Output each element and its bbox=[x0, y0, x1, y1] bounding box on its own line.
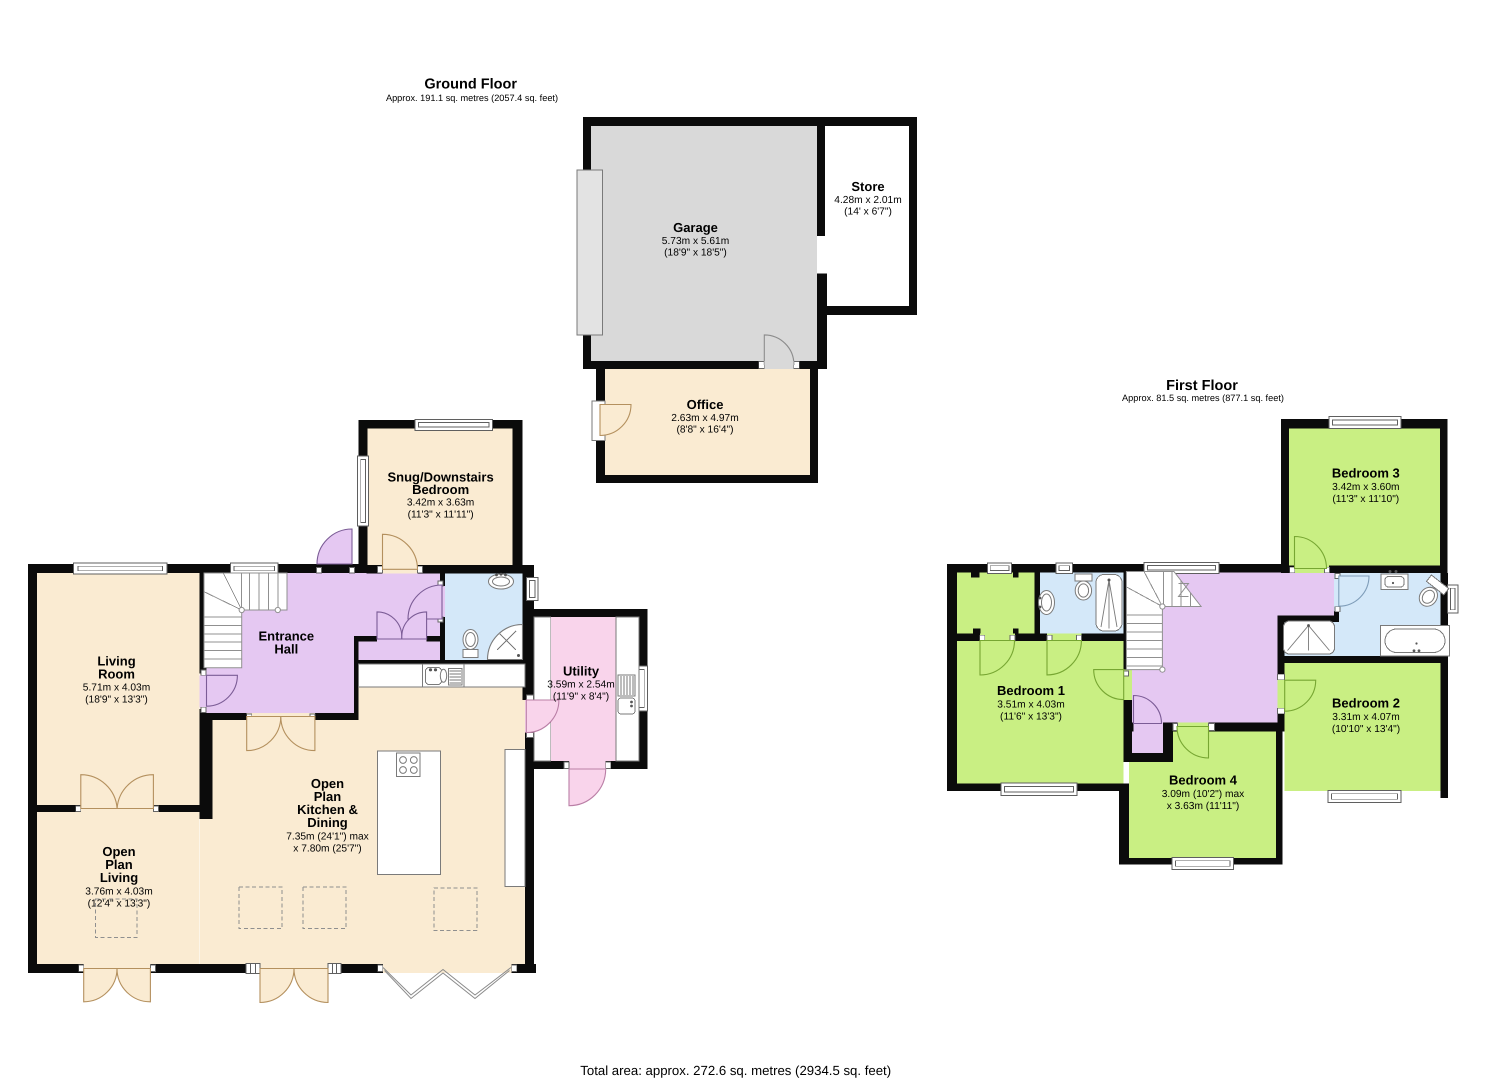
svg-text:Bedroom 2: Bedroom 2 bbox=[1332, 696, 1400, 711]
svg-text:5.71m x 4.03m: 5.71m x 4.03m bbox=[83, 683, 150, 694]
svg-text:3.59m x 2.54m: 3.59m x 2.54m bbox=[547, 680, 614, 691]
svg-text:Approx. 81.5 sq. metres (877.1: Approx. 81.5 sq. metres (877.1 sq. feet) bbox=[1122, 393, 1284, 403]
svg-text:Approx. 191.1 sq. metres (2057: Approx. 191.1 sq. metres (2057.4 sq. fee… bbox=[386, 93, 558, 103]
svg-text:Office: Office bbox=[687, 397, 724, 412]
svg-text:Total area: approx. 272.6 sq.: Total area: approx. 272.6 sq. metres (29… bbox=[580, 1063, 891, 1078]
svg-text:(14' x 6'7"): (14' x 6'7") bbox=[844, 207, 892, 218]
svg-text:Dining: Dining bbox=[307, 815, 347, 830]
svg-text:(12'4" x 13'3"): (12'4" x 13'3") bbox=[88, 899, 151, 910]
svg-text:x 7.80m (25'7"): x 7.80m (25'7") bbox=[293, 844, 361, 855]
svg-text:3.51m x 4.03m: 3.51m x 4.03m bbox=[997, 699, 1064, 710]
svg-text:Living: Living bbox=[100, 870, 138, 885]
svg-text:(11'9" x 8'4"): (11'9" x 8'4") bbox=[553, 692, 609, 703]
svg-text:Room: Room bbox=[98, 667, 135, 682]
svg-text:Store: Store bbox=[851, 179, 884, 194]
svg-text:Hall: Hall bbox=[274, 642, 298, 657]
svg-text:(18'9" x 13'3"): (18'9" x 13'3") bbox=[85, 695, 148, 706]
svg-text:(11'3" x 11'10"): (11'3" x 11'10") bbox=[1332, 494, 1399, 505]
svg-text:2.63m x 4.97m: 2.63m x 4.97m bbox=[671, 413, 738, 424]
svg-text:Ground Floor: Ground Floor bbox=[424, 77, 517, 93]
svg-text:Garage: Garage bbox=[673, 220, 718, 235]
svg-text:Utility: Utility bbox=[563, 664, 600, 679]
svg-text:Bedroom 1: Bedroom 1 bbox=[997, 683, 1065, 698]
svg-text:(11'3" x 11'11"): (11'3" x 11'11") bbox=[408, 509, 474, 520]
svg-text:3.76m x 4.03m: 3.76m x 4.03m bbox=[85, 887, 152, 898]
svg-text:(8'8" x 16'4"): (8'8" x 16'4") bbox=[677, 425, 734, 436]
svg-text:(18'9" x 18'5"): (18'9" x 18'5") bbox=[664, 248, 727, 259]
svg-text:Bedroom 3: Bedroom 3 bbox=[1332, 466, 1400, 481]
svg-text:(10'10" x 13'4"): (10'10" x 13'4") bbox=[1332, 724, 1400, 735]
svg-text:7.35m (24'1") max: 7.35m (24'1") max bbox=[286, 832, 369, 843]
svg-text:3.42m x 3.63m: 3.42m x 3.63m bbox=[407, 497, 474, 508]
svg-text:3.42m x 3.60m: 3.42m x 3.60m bbox=[1332, 482, 1399, 493]
svg-text:Bedroom 4: Bedroom 4 bbox=[1169, 773, 1238, 788]
svg-text:4.28m x 2.01m: 4.28m x 2.01m bbox=[834, 195, 901, 206]
svg-text:3.31m x 4.07m: 3.31m x 4.07m bbox=[1332, 712, 1399, 723]
svg-text:(11'6" x 13'3"): (11'6" x 13'3") bbox=[1000, 711, 1062, 722]
svg-text:x 3.63m (11'11"): x 3.63m (11'11") bbox=[1167, 801, 1240, 812]
svg-text:Bedroom: Bedroom bbox=[412, 482, 469, 497]
svg-text:3.09m (10'2") max: 3.09m (10'2") max bbox=[1162, 789, 1245, 800]
svg-text:First Floor: First Floor bbox=[1166, 378, 1238, 394]
svg-text:5.73m x 5.61m: 5.73m x 5.61m bbox=[662, 236, 729, 247]
